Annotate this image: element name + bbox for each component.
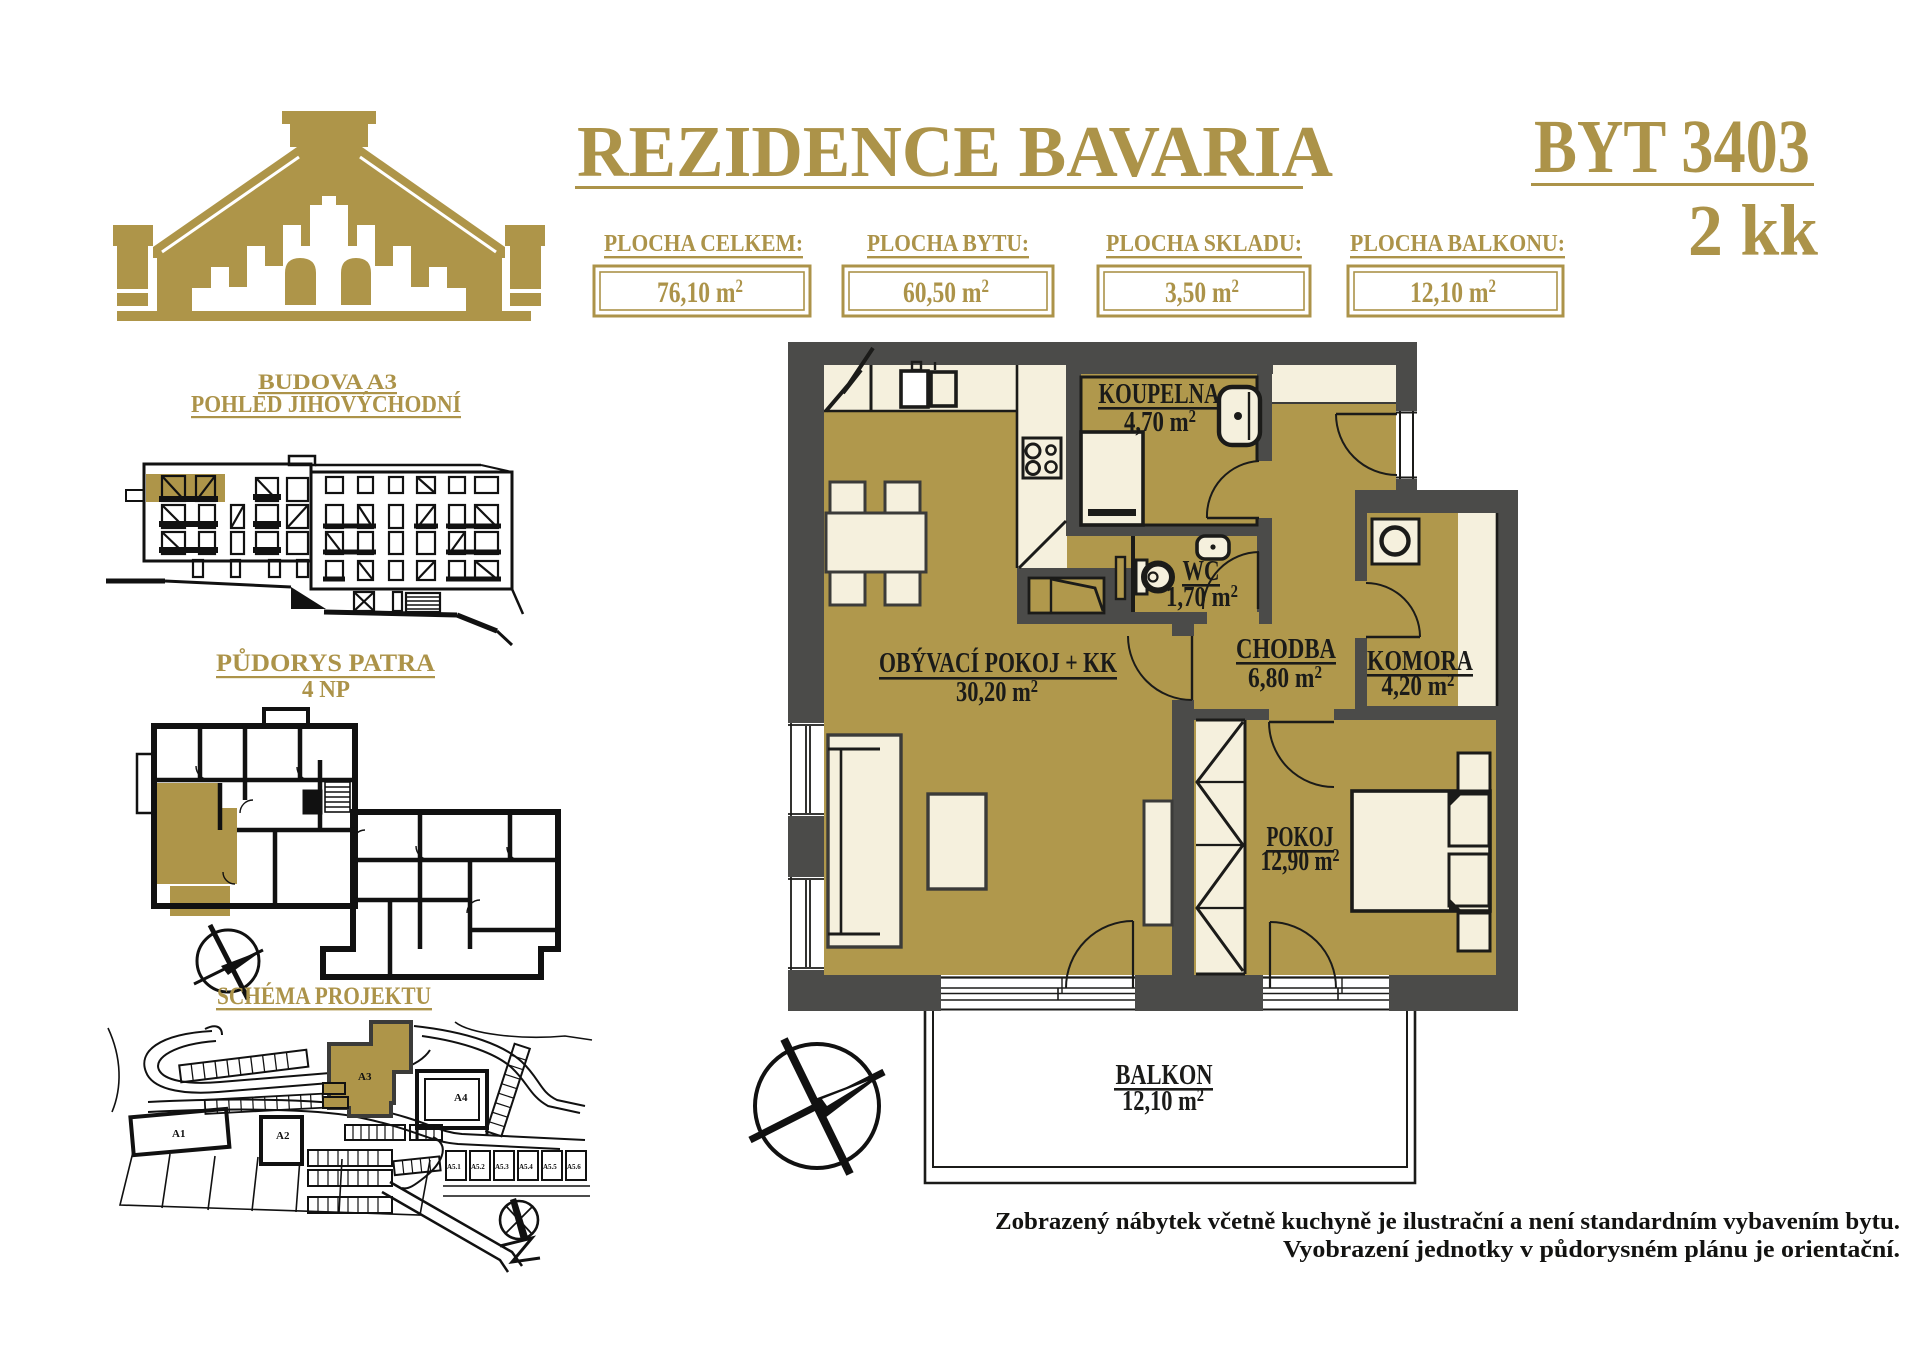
svg-text:PLOCHA BYTU:: PLOCHA BYTU: — [867, 231, 1029, 257]
svg-text:76,10 m2: 76,10 m2 — [657, 276, 743, 309]
svg-text:A5.4: A5.4 — [519, 1163, 533, 1171]
svg-text:30,20 m2: 30,20 m2 — [956, 676, 1038, 708]
svg-text:A5.6: A5.6 — [567, 1163, 581, 1171]
svg-text:A1: A1 — [172, 1128, 185, 1140]
svg-text:PLOCHA SKLADU:: PLOCHA SKLADU: — [1106, 231, 1302, 257]
svg-text:A3: A3 — [358, 1071, 372, 1083]
svg-text:1,70 m2: 1,70 m2 — [1166, 581, 1238, 613]
svg-text:A5.5: A5.5 — [543, 1163, 557, 1171]
svg-text:PLOCHA CELKEM:: PLOCHA CELKEM: — [604, 231, 803, 257]
svg-text:CHODBA: CHODBA — [1236, 634, 1337, 665]
svg-text:POHLED JIHOVÝCHODNÍ: POHLED JIHOVÝCHODNÍ — [191, 392, 461, 418]
svg-text:Vyobrazení jednotky v půdorysn: Vyobrazení jednotky v půdorysném plánu j… — [1283, 1237, 1900, 1263]
svg-text:12,10 m2: 12,10 m2 — [1122, 1085, 1204, 1117]
svg-text:A4: A4 — [454, 1092, 468, 1104]
svg-text:60,50 m2: 60,50 m2 — [903, 276, 989, 309]
svg-text:BYT 3403: BYT 3403 — [1534, 105, 1810, 189]
svg-text:OBÝVACÍ POKOJ + KK: OBÝVACÍ POKOJ + KK — [879, 648, 1117, 679]
svg-text:REZIDENCE BAVARIA: REZIDENCE BAVARIA — [577, 111, 1333, 192]
svg-text:SCHÉMA PROJEKTU: SCHÉMA PROJEKTU — [217, 982, 431, 1010]
svg-text:BUDOVA A3: BUDOVA A3 — [258, 369, 397, 394]
svg-text:4 NP: 4 NP — [302, 677, 350, 703]
svg-text:3,50 m2: 3,50 m2 — [1165, 276, 1239, 309]
svg-text:A5.2: A5.2 — [471, 1163, 485, 1171]
svg-text:6,80 m2: 6,80 m2 — [1248, 662, 1322, 694]
svg-text:12,10 m2: 12,10 m2 — [1410, 276, 1496, 309]
svg-text:A2: A2 — [276, 1130, 290, 1142]
svg-text:KOUPELNA: KOUPELNA — [1099, 379, 1221, 410]
svg-text:4,70 m2: 4,70 m2 — [1124, 406, 1196, 438]
svg-text:PŮDORYS PATRA: PŮDORYS PATRA — [216, 647, 435, 677]
svg-text:12,90 m2: 12,90 m2 — [1261, 845, 1340, 877]
svg-text:PLOCHA BALKONU:: PLOCHA BALKONU: — [1350, 231, 1565, 257]
svg-text:Zobrazený nábytek včetně kuchy: Zobrazený nábytek včetně kuchyně je ilus… — [995, 1209, 1900, 1235]
svg-text:A5.3: A5.3 — [495, 1163, 509, 1171]
svg-text:2 kk: 2 kk — [1688, 190, 1818, 271]
svg-text:A5.1: A5.1 — [447, 1163, 461, 1171]
svg-text:4,20 m2: 4,20 m2 — [1382, 670, 1455, 702]
